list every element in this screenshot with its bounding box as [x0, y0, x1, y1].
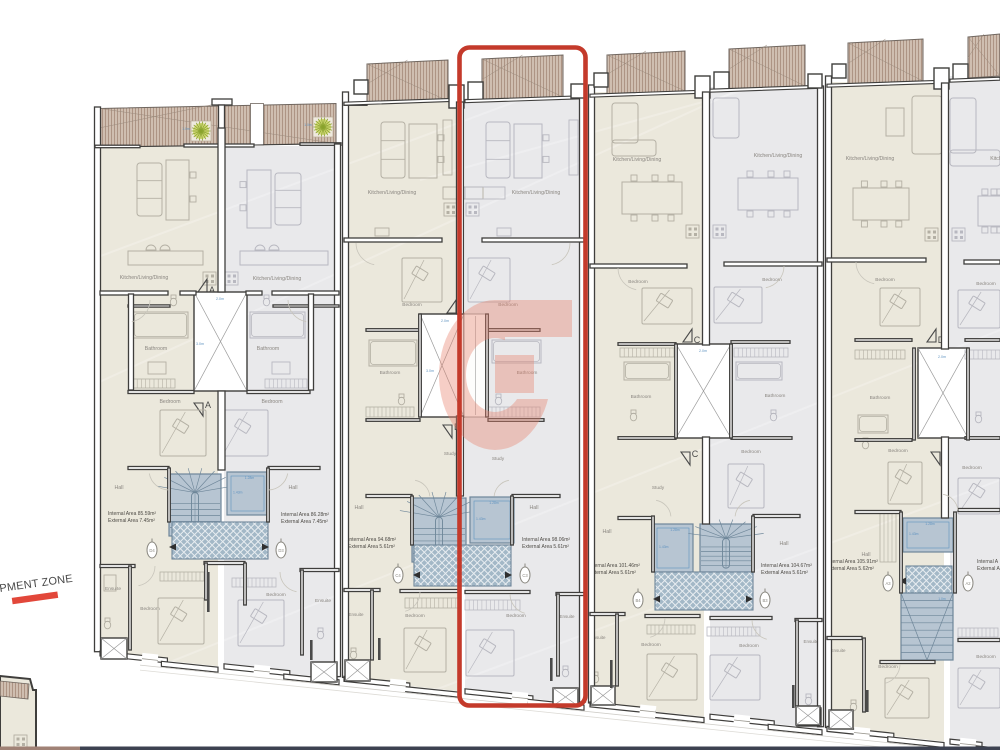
svg-text:2.0m: 2.0m: [216, 297, 224, 301]
svg-text:1.0m: 1.0m: [182, 127, 190, 131]
svg-text:Kitchen/Living/Dining: Kitchen/Living/Dining: [754, 153, 803, 159]
svg-text:Bedroom: Bedroom: [976, 281, 995, 287]
svg-text:1.28m: 1.28m: [925, 522, 935, 526]
svg-text:Bedroom: Bedroom: [628, 279, 647, 285]
svg-text:A: A: [205, 400, 211, 410]
svg-text:2.0m: 2.0m: [441, 319, 449, 323]
svg-text:1.28m: 1.28m: [670, 528, 680, 532]
svg-text:Internal Area 104.67m²: Internal Area 104.67m²: [761, 563, 812, 569]
svg-text:Internal Area 101.46m²: Internal Area 101.46m²: [589, 563, 640, 569]
svg-text:A2: A2: [965, 581, 971, 586]
svg-text:Bedroom: Bedroom: [739, 643, 758, 649]
svg-text:External Area 7.45m²: External Area 7.45m²: [108, 518, 155, 524]
svg-text:Kitchen/Living/Dining: Kitchen/Living/Dining: [368, 190, 417, 196]
svg-text:Bedroom: Bedroom: [962, 465, 981, 471]
svg-text:C3: C3: [522, 573, 528, 578]
svg-text:Kitchen/Living/Dining: Kitchen/Living/Dining: [120, 275, 169, 281]
svg-text:Bathroom: Bathroom: [631, 394, 652, 400]
svg-text:Kitchen/Living/Dining: Kitchen/Living/Dining: [512, 190, 561, 196]
svg-text:External Area 7.45m²: External Area 7.45m²: [281, 519, 328, 525]
svg-text:Internal Area 85.59m²: Internal Area 85.59m²: [108, 511, 156, 517]
svg-text:Bedroom: Bedroom: [261, 399, 282, 405]
svg-text:1.43m: 1.43m: [909, 532, 919, 536]
svg-text:Bathroom: Bathroom: [145, 346, 168, 352]
svg-text:External Area 5.61m²: External Area 5.61m²: [348, 544, 395, 550]
svg-text:Bathroom: Bathroom: [870, 395, 891, 401]
svg-text:2.0m: 2.0m: [938, 355, 946, 359]
svg-text:3.0m: 3.0m: [196, 342, 204, 346]
svg-text:D4: D4: [149, 548, 155, 553]
svg-text:Kitch: Kitch: [990, 156, 1000, 162]
svg-text:Hall: Hall: [780, 541, 789, 547]
svg-text:Kitchen/Living/Dining: Kitchen/Living/Dining: [613, 157, 662, 163]
svg-text:D3: D3: [278, 548, 284, 553]
svg-text:Hall: Hall: [289, 485, 298, 491]
svg-text:1.28m: 1.28m: [245, 476, 255, 480]
svg-text:Hall: Hall: [862, 552, 871, 558]
svg-text:Bedroom: Bedroom: [878, 664, 897, 670]
svg-text:Bedroom: Bedroom: [888, 448, 907, 454]
svg-text:Bedroom: Bedroom: [506, 613, 525, 619]
svg-text:1.28m: 1.28m: [489, 501, 499, 505]
svg-text:Bedroom: Bedroom: [140, 606, 159, 612]
svg-text:External Area 5.61m²: External Area 5.61m²: [761, 570, 808, 576]
svg-text:External Area 5.61m²: External Area 5.61m²: [522, 544, 569, 550]
svg-text:Study: Study: [492, 456, 505, 462]
svg-text:B3: B3: [762, 598, 768, 603]
svg-text:Kitchen/Living/Dining: Kitchen/Living/Dining: [846, 156, 895, 162]
svg-text:1.43m: 1.43m: [476, 517, 486, 521]
svg-text:Hall: Hall: [603, 529, 612, 535]
svg-text:Bedroom: Bedroom: [405, 613, 424, 619]
svg-text:2.0m: 2.0m: [699, 349, 707, 353]
svg-text:External Area 5.62m²: External Area 5.62m²: [827, 566, 874, 572]
svg-text:Bathroom: Bathroom: [765, 393, 786, 399]
svg-text:1.0m: 1.0m: [938, 597, 946, 601]
svg-text:Internal A: Internal A: [977, 559, 999, 565]
svg-text:Ensuite: Ensuite: [830, 648, 846, 653]
svg-text:1.43m: 1.43m: [659, 545, 669, 549]
svg-text:Kitchen/Living/Dining: Kitchen/Living/Dining: [253, 276, 302, 282]
svg-text:1.43m: 1.43m: [233, 491, 243, 495]
svg-text:A3: A3: [885, 581, 891, 586]
svg-text:Hall: Hall: [530, 505, 539, 511]
svg-text:C4: C4: [395, 573, 401, 578]
svg-text:Bathroom: Bathroom: [257, 346, 280, 352]
svg-text:Internal Area 94.68m²: Internal Area 94.68m²: [348, 537, 396, 543]
svg-text:Hall: Hall: [355, 505, 364, 511]
svg-text:Ensuite: Ensuite: [348, 612, 364, 617]
svg-text:Hall: Hall: [115, 485, 124, 491]
svg-text:Internal Area 98.06m²: Internal Area 98.06m²: [522, 537, 570, 543]
svg-text:C: C: [692, 449, 699, 459]
svg-text:Ensuite: Ensuite: [559, 614, 575, 619]
svg-text:Bedroom: Bedroom: [641, 642, 660, 648]
svg-text:Bedroom: Bedroom: [266, 592, 285, 598]
svg-text:Ensuite: Ensuite: [803, 639, 819, 644]
svg-text:External A: External A: [977, 566, 1000, 572]
svg-text:1.0m: 1.0m: [304, 123, 312, 127]
svg-text:Bedroom: Bedroom: [159, 399, 180, 405]
svg-text:B4: B4: [635, 598, 641, 603]
svg-text:Bedroom: Bedroom: [976, 654, 995, 660]
svg-text:Study: Study: [652, 485, 665, 491]
svg-text:Study: Study: [444, 451, 457, 457]
svg-text:External Area 5.61m²: External Area 5.61m²: [589, 570, 636, 576]
svg-text:Bedroom: Bedroom: [402, 302, 421, 308]
svg-text:PMENT ZONE: PMENT ZONE: [0, 573, 74, 595]
svg-text:3.0m: 3.0m: [426, 369, 434, 373]
svg-text:Bathroom: Bathroom: [380, 370, 401, 376]
svg-text:Bedroom: Bedroom: [741, 449, 760, 455]
svg-text:Bedroom: Bedroom: [875, 277, 894, 283]
svg-text:Internal Area 105.91m²: Internal Area 105.91m²: [827, 559, 878, 565]
svg-text:Ensuite: Ensuite: [315, 598, 331, 604]
svg-text:Internal Area 86.28m²: Internal Area 86.28m²: [281, 512, 329, 518]
